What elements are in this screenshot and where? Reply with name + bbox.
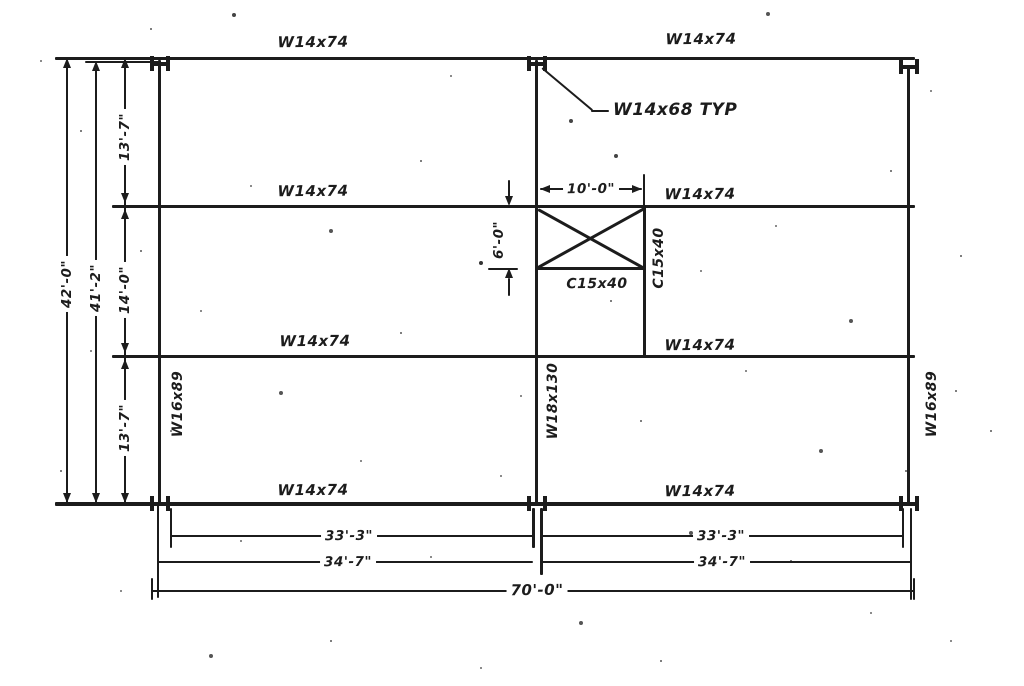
dim-tick-overall-left	[151, 578, 153, 600]
dim-arrow	[540, 185, 550, 193]
beam-label-mid-left: W14x74	[277, 182, 348, 201]
dim-overall-height: 42'-0"	[59, 256, 75, 312]
column-label-right: W16x89	[924, 371, 940, 437]
dim-arrow	[63, 493, 71, 503]
beam-label-top-right: W14x74	[665, 30, 736, 49]
dim-right-span-outer: 34'-7"	[694, 554, 750, 570]
dim-arrow	[63, 58, 71, 68]
callout-label: W14x68 TYP	[613, 100, 737, 120]
dim-overall-width: 70'-0"	[506, 581, 567, 600]
channel-label-bottom: C15x40	[566, 276, 627, 293]
callout-leader-diagonal	[541, 67, 593, 111]
dim-arrow	[121, 343, 129, 353]
dim-arrow	[121, 58, 129, 68]
column-symbol-top-right	[899, 59, 919, 74]
beam-label-bottom-right: W14x74	[664, 482, 735, 501]
opening-bottom-line	[536, 267, 644, 270]
beam-label-bottom-left: W14x74	[277, 481, 348, 500]
dim-opening-height: 6'-0"	[491, 221, 507, 259]
dim-arrow	[121, 359, 129, 369]
dim-arrow	[505, 196, 513, 206]
dim-inner-height: 41'-2"	[88, 260, 104, 316]
right-column-line	[907, 68, 910, 503]
dim-stem-opening-height-bottom	[508, 278, 510, 296]
dim-extension-bottom-center-b	[540, 508, 543, 575]
top-beam-line	[55, 57, 915, 60]
dim-arrow	[121, 193, 129, 203]
dim-extension-bottom-left-inner	[170, 508, 172, 548]
beam-label-lower-right: W14x74	[664, 336, 735, 355]
column-symbol-top-left	[150, 56, 170, 71]
beam-label-top-left: W14x74	[277, 33, 348, 52]
third-beam-line	[112, 355, 915, 358]
center-column-line	[535, 60, 538, 503]
column-label-center: W18x130	[545, 363, 561, 440]
dim-arrow	[632, 185, 642, 193]
second-beam-line	[112, 205, 915, 208]
dim-extension-bottom-right-inner	[902, 508, 904, 548]
column-symbol-bottom-center	[527, 496, 547, 511]
left-column-line	[158, 60, 161, 503]
dim-extension-opening-right	[643, 174, 645, 206]
framing-plan-drawing: W14x68 TYP W14x74 W14x74 W14x74 W14x74 W…	[0, 0, 1024, 686]
dim-tick-opening-bottom	[488, 268, 518, 270]
dim-extension-bottom-right-outer	[910, 508, 912, 600]
bottom-beam-line	[55, 502, 915, 506]
dim-upper-bay-height: 13'-7"	[117, 109, 133, 165]
dim-lower-bay-height: 13'-7"	[117, 400, 133, 456]
dim-left-span-inner: 33'-3"	[321, 528, 377, 544]
beam-label-mid-right: W14x74	[664, 185, 735, 204]
dim-arrow	[121, 209, 129, 219]
channel-vertical-line	[643, 206, 646, 357]
channel-label-side: C15x40	[651, 227, 667, 288]
column-label-left: W16x89	[170, 371, 186, 437]
dim-arrow	[92, 493, 100, 503]
dim-extension-bottom-left-outer	[157, 505, 159, 598]
dim-arrow	[92, 61, 100, 71]
beam-label-lower-left: W14x74	[279, 332, 350, 351]
dim-opening-width: 10'-0"	[563, 181, 619, 197]
dim-arrow	[121, 493, 129, 503]
dim-right-span-inner: 33'-3"	[693, 528, 749, 544]
dim-left-span-outer: 34'-7"	[320, 554, 376, 570]
dim-extension-bottom-center-a	[532, 508, 535, 548]
scan-noise	[0, 0, 2, 2]
column-symbol-bottom-left	[150, 496, 170, 511]
callout-leader-horizontal	[591, 110, 609, 112]
dim-middle-bay-height: 14'-0"	[117, 262, 133, 318]
dim-tick-overall-right	[913, 578, 915, 600]
